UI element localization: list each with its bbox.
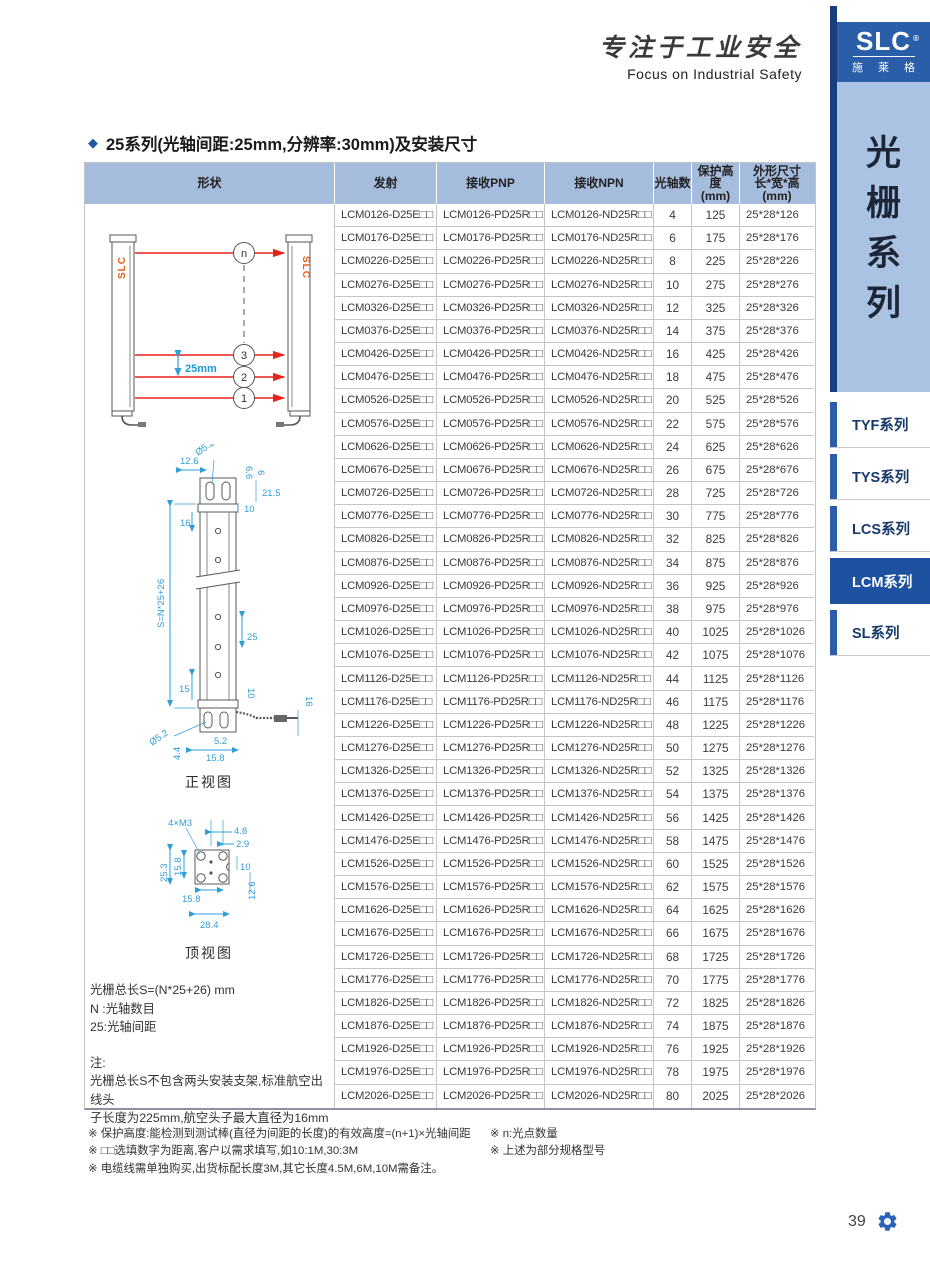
- table-row: LCM0376-D25E□□LCM0376-PD25R□□LCM0376-ND2…: [335, 320, 814, 343]
- cell-axes: 16: [654, 343, 692, 366]
- cell-pnp: LCM1126-PD25R□□: [437, 667, 545, 690]
- cell-axes: 26: [654, 459, 692, 482]
- cell-emitter: LCM2026-D25E□□: [335, 1085, 437, 1108]
- cell-pnp: LCM0326-PD25R□□: [437, 297, 545, 320]
- cell-dims: 25*28*1876: [740, 1015, 814, 1038]
- cell-height: 1425: [692, 806, 740, 829]
- cell-emitter: LCM0376-D25E□□: [335, 320, 437, 343]
- cell-height: 1775: [692, 969, 740, 992]
- cell-pnp: LCM1876-PD25R□□: [437, 1015, 545, 1038]
- cell-height: 625: [692, 436, 740, 459]
- cell-height: 825: [692, 528, 740, 551]
- column-header: 发射: [335, 163, 437, 204]
- cell-axes: 68: [654, 946, 692, 969]
- cell-pnp: LCM1776-PD25R□□: [437, 969, 545, 992]
- cell-axes: 18: [654, 366, 692, 389]
- cell-emitter: LCM0576-D25E□□: [335, 413, 437, 436]
- cell-emitter: LCM0626-D25E□□: [335, 436, 437, 459]
- sidebar-series-title: 光 栅 系 列: [837, 82, 930, 392]
- sidebar-tab-SL系列[interactable]: SL系列: [830, 610, 930, 656]
- cell-npn: LCM0376-ND25R□□: [545, 320, 654, 343]
- cell-height: 1725: [692, 946, 740, 969]
- cell-emitter: LCM0476-D25E□□: [335, 366, 437, 389]
- cell-axes: 54: [654, 783, 692, 806]
- dim-4-8: 4.8: [234, 826, 247, 837]
- cell-pnp: LCM1576-PD25R□□: [437, 876, 545, 899]
- cell-pnp: LCM0476-PD25R□□: [437, 366, 545, 389]
- cell-axes: 32: [654, 528, 692, 551]
- shape-notes: 光栅总长S=(N*25+26) mm N :光轴数目 25:光轴间距 注: 光栅…: [90, 981, 332, 1128]
- cell-dims: 25*28*1976: [740, 1061, 814, 1084]
- table-row: LCM0826-D25E□□LCM0826-PD25R□□LCM0826-ND2…: [335, 528, 814, 551]
- cell-dims: 25*28*1276: [740, 737, 814, 760]
- cell-npn: LCM2026-ND25R□□: [545, 1085, 654, 1108]
- cell-pnp: LCM0676-PD25R□□: [437, 459, 545, 482]
- dim-28-4: 28.4: [200, 920, 219, 931]
- cell-pnp: LCM1226-PD25R□□: [437, 714, 545, 737]
- registered-mark: ®: [913, 27, 920, 51]
- beam-label-3: 3: [241, 350, 247, 362]
- table-row: LCM2026-D25E□□LCM2026-PD25R□□LCM2026-ND2…: [335, 1085, 814, 1108]
- cell-height: 2025: [692, 1085, 740, 1108]
- table-row: LCM1126-D25E□□LCM1126-PD25R□□LCM1126-ND2…: [335, 667, 814, 690]
- cell-axes: 10: [654, 274, 692, 297]
- top-view-drawing: 4×M3 4.8 2.9 15.8 25.3 10 12.6 15.8 28.4: [140, 800, 340, 935]
- table-row: LCM1076-D25E□□LCM1076-PD25R□□LCM1076-ND2…: [335, 644, 814, 667]
- table-row: LCM1226-D25E□□LCM1226-PD25R□□LCM1226-ND2…: [335, 714, 814, 737]
- table-row: LCM1726-D25E□□LCM1726-PD25R□□LCM1726-ND2…: [335, 946, 814, 969]
- section-title: ◆ 25系列(光轴间距:25mm,分辨率:30mm)及安装尺寸: [88, 131, 477, 155]
- dim-total: S=N*25+26: [156, 579, 167, 628]
- cell-npn: LCM1176-ND25R□□: [545, 691, 654, 714]
- beam-diagram: SLC SLC n 3 2 1 25mm: [96, 222, 326, 434]
- table-row: LCM1526-D25E□□LCM1526-PD25R□□LCM1526-ND2…: [335, 853, 814, 876]
- cell-pnp: LCM0576-PD25R□□: [437, 413, 545, 436]
- dim-6: 6: [255, 470, 266, 475]
- cell-npn: LCM0826-ND25R□□: [545, 528, 654, 551]
- cell-npn: LCM1426-ND25R□□: [545, 806, 654, 829]
- cell-pnp: LCM1926-PD25R□□: [437, 1038, 545, 1061]
- cell-axes: 46: [654, 691, 692, 714]
- spec-table-body: LCM0126-D25E□□LCM0126-PD25R□□LCM0126-ND2…: [335, 204, 814, 1108]
- cell-axes: 34: [654, 552, 692, 575]
- page-footer: 39: [848, 1210, 899, 1233]
- cell-axes: 50: [654, 737, 692, 760]
- cell-emitter: LCM1576-D25E□□: [335, 876, 437, 899]
- cell-pnp: LCM0126-PD25R□□: [437, 204, 545, 227]
- cell-dims: 25*28*176: [740, 227, 814, 250]
- table-row: LCM1426-D25E□□LCM1426-PD25R□□LCM1426-ND2…: [335, 806, 814, 829]
- slc-logo: SLC® 施 莱 格: [837, 22, 930, 82]
- table-row: LCM1276-D25E□□LCM1276-PD25R□□LCM1276-ND2…: [335, 737, 814, 760]
- cell-emitter: LCM1126-D25E□□: [335, 667, 437, 690]
- tab-label: LCS系列: [837, 518, 910, 539]
- dim-5-2: 5.2: [214, 736, 227, 747]
- cell-pnp: LCM0926-PD25R□□: [437, 575, 545, 598]
- cell-emitter: LCM1776-D25E□□: [335, 969, 437, 992]
- cell-axes: 24: [654, 436, 692, 459]
- front-view-drawing: S=N*25+26 12.6 Ø5.2 6.6 6 21.5 10 16 25 …: [140, 444, 340, 764]
- cell-emitter: LCM0426-D25E□□: [335, 343, 437, 366]
- cell-npn: LCM0126-ND25R□□: [545, 204, 654, 227]
- table-row: LCM1376-D25E□□LCM1376-PD25R□□LCM1376-ND2…: [335, 783, 814, 806]
- cell-emitter: LCM1176-D25E□□: [335, 691, 437, 714]
- cell-pnp: LCM0276-PD25R□□: [437, 274, 545, 297]
- cell-height: 1675: [692, 922, 740, 945]
- cell-axes: 40: [654, 621, 692, 644]
- cell-height: 125: [692, 204, 740, 227]
- cell-pnp: LCM0376-PD25R□□: [437, 320, 545, 343]
- cell-emitter: LCM1526-D25E□□: [335, 853, 437, 876]
- cell-emitter: LCM0226-D25E□□: [335, 250, 437, 273]
- brand-area: 专注于工业安全 Focus on Industrial Safety: [502, 28, 802, 82]
- cell-pnp: LCM0776-PD25R□□: [437, 505, 545, 528]
- cell-height: 325: [692, 297, 740, 320]
- sidebar-tab-LCS系列[interactable]: LCS系列: [830, 506, 930, 552]
- cell-emitter: LCM1226-D25E□□: [335, 714, 437, 737]
- table-row: LCM1926-D25E□□LCM1926-PD25R□□LCM1926-ND2…: [335, 1038, 814, 1061]
- cell-dims: 25*28*676: [740, 459, 814, 482]
- dim-15-8: 15.8: [206, 753, 225, 764]
- cell-pnp: LCM0226-PD25R□□: [437, 250, 545, 273]
- cell-height: 575: [692, 413, 740, 436]
- page-number: 39: [848, 1213, 866, 1231]
- cell-pnp: LCM1976-PD25R□□: [437, 1061, 545, 1084]
- cell-axes: 66: [654, 922, 692, 945]
- tab-accent-bar: [830, 454, 837, 499]
- cell-emitter: LCM0976-D25E□□: [335, 598, 437, 621]
- table-row: LCM0976-D25E□□LCM0976-PD25R□□LCM0976-ND2…: [335, 598, 814, 621]
- table-row: LCM0726-D25E□□LCM0726-PD25R□□LCM0726-ND2…: [335, 482, 814, 505]
- n-definition: N :光轴数目: [90, 1000, 332, 1019]
- diamond-bullet-icon: ◆: [88, 135, 98, 151]
- cell-npn: LCM0676-ND25R□□: [545, 459, 654, 482]
- cell-height: 525: [692, 389, 740, 412]
- cell-npn: LCM0926-ND25R□□: [545, 575, 654, 598]
- catalog-page: 专注于工业安全 Focus on Industrial Safety SLC® …: [0, 0, 930, 1262]
- beam-label-2: 2: [241, 372, 247, 384]
- cell-dims: 25*28*426: [740, 343, 814, 366]
- tab-accent-bar: [830, 610, 837, 655]
- sidebar-accent-strip: [830, 6, 837, 392]
- table-row: LCM1976-D25E□□LCM1976-PD25R□□LCM1976-ND2…: [335, 1061, 814, 1084]
- tab-label: TYF系列: [837, 414, 908, 435]
- dim-6-6: 6.6: [243, 466, 254, 479]
- cell-emitter: LCM0926-D25E□□: [335, 575, 437, 598]
- cell-npn: LCM0226-ND25R□□: [545, 250, 654, 273]
- table-header: 形状发射接收PNP接收NPN光轴数保护高度 (mm)外形尺寸 长*宽*高 (mm…: [85, 163, 815, 204]
- cell-axes: 38: [654, 598, 692, 621]
- dim-25-3: 25.3: [159, 864, 170, 883]
- table-row: LCM1626-D25E□□LCM1626-PD25R□□LCM1626-ND2…: [335, 899, 814, 922]
- cell-height: 1575: [692, 876, 740, 899]
- table-row: LCM1676-D25E□□LCM1676-PD25R□□LCM1676-ND2…: [335, 922, 814, 945]
- footnotes-left: ※ 保护高度:能检测到测试棒(直径为间距的长度)的有效高度=(n+1)×光轴间距…: [88, 1126, 471, 1178]
- table-row: LCM0326-D25E□□LCM0326-PD25R□□LCM0326-ND2…: [335, 297, 814, 320]
- cell-emitter: LCM0676-D25E□□: [335, 459, 437, 482]
- cell-axes: 74: [654, 1015, 692, 1038]
- table-row: LCM0776-D25E□□LCM0776-PD25R□□LCM0776-ND2…: [335, 505, 814, 528]
- table-row: LCM0526-D25E□□LCM0526-PD25R□□LCM0526-ND2…: [335, 389, 814, 412]
- cell-height: 925: [692, 575, 740, 598]
- cell-axes: 6: [654, 227, 692, 250]
- gear-icon: [876, 1210, 899, 1233]
- cell-dims: 25*28*1476: [740, 830, 814, 853]
- cell-dims: 25*28*1376: [740, 783, 814, 806]
- cell-axes: 58: [654, 830, 692, 853]
- cell-dims: 25*28*276: [740, 274, 814, 297]
- cell-height: 1125: [692, 667, 740, 690]
- cell-npn: LCM1776-ND25R□□: [545, 969, 654, 992]
- right-bar-logo: SLC: [300, 256, 311, 279]
- cell-axes: 62: [654, 876, 692, 899]
- cell-npn: LCM1476-ND25R□□: [545, 830, 654, 853]
- cell-pnp: LCM1276-PD25R□□: [437, 737, 545, 760]
- top-view-caption: 顶视图: [84, 943, 334, 963]
- cell-dims: 25*28*576: [740, 413, 814, 436]
- cell-axes: 78: [654, 1061, 692, 1084]
- cell-npn: LCM1376-ND25R□□: [545, 783, 654, 806]
- right-bar-cap: [286, 235, 312, 242]
- dim-dia-bot: Ø5.2: [147, 728, 170, 749]
- cell-npn: LCM1626-ND25R□□: [545, 899, 654, 922]
- cell-axes: 76: [654, 1038, 692, 1061]
- beam-label-1: 1: [241, 393, 247, 405]
- cell-npn: LCM0726-ND25R□□: [545, 482, 654, 505]
- pitch-label: 25mm: [185, 363, 217, 375]
- cell-npn: LCM0626-ND25R□□: [545, 436, 654, 459]
- cell-npn: LCM0276-ND25R□□: [545, 274, 654, 297]
- cell-height: 1525: [692, 853, 740, 876]
- cell-dims: 25*28*526: [740, 389, 814, 412]
- cell-height: 1325: [692, 760, 740, 783]
- cell-dims: 25*28*226: [740, 250, 814, 273]
- cell-dims: 25*28*976: [740, 598, 814, 621]
- cell-height: 1175: [692, 691, 740, 714]
- cell-emitter: LCM1626-D25E□□: [335, 899, 437, 922]
- cell-npn: LCM1076-ND25R□□: [545, 644, 654, 667]
- cell-axes: 70: [654, 969, 692, 992]
- cell-dims: 25*28*726: [740, 482, 814, 505]
- section-title-text: 25系列(光轴间距:25mm,分辨率:30mm)及安装尺寸: [106, 131, 477, 155]
- cell-pnp: LCM1326-PD25R□□: [437, 760, 545, 783]
- series-char: 光: [866, 136, 901, 171]
- cell-npn: LCM1726-ND25R□□: [545, 946, 654, 969]
- cell-emitter: LCM1726-D25E□□: [335, 946, 437, 969]
- table-row: LCM0676-D25E□□LCM0676-PD25R□□LCM0676-ND2…: [335, 459, 814, 482]
- cell-npn: LCM1826-ND25R□□: [545, 992, 654, 1015]
- table-row: LCM0476-D25E□□LCM0476-PD25R□□LCM0476-ND2…: [335, 366, 814, 389]
- cell-pnp: LCM1426-PD25R□□: [437, 806, 545, 829]
- cell-axes: 72: [654, 992, 692, 1015]
- dim-16-top: 16: [180, 518, 191, 529]
- cell-dims: 25*28*1776: [740, 969, 814, 992]
- cell-axes: 8: [654, 250, 692, 273]
- sidebar-tab-TYS系列[interactable]: TYS系列: [830, 454, 930, 500]
- note-line-2: 子长度为225mm,航空头子最大直径为16mm: [90, 1109, 332, 1128]
- cell-emitter: LCM1476-D25E□□: [335, 830, 437, 853]
- column-header: 接收NPN: [545, 163, 654, 204]
- sidebar-tab-LCM系列[interactable]: LCM系列: [830, 558, 930, 604]
- table-row: LCM1476-D25E□□LCM1476-PD25R□□LCM1476-ND2…: [335, 830, 814, 853]
- cell-pnp: LCM0526-PD25R□□: [437, 389, 545, 412]
- table-row: LCM0876-D25E□□LCM0876-PD25R□□LCM0876-ND2…: [335, 552, 814, 575]
- cell-emitter: LCM0126-D25E□□: [335, 204, 437, 227]
- cell-dims: 25*28*1676: [740, 922, 814, 945]
- cell-axes: 48: [654, 714, 692, 737]
- tab-accent-bar: [830, 558, 837, 604]
- cell-pnp: LCM1726-PD25R□□: [437, 946, 545, 969]
- cell-pnp: LCM0626-PD25R□□: [437, 436, 545, 459]
- cell-emitter: LCM1376-D25E□□: [335, 783, 437, 806]
- cell-axes: 44: [654, 667, 692, 690]
- cell-axes: 64: [654, 899, 692, 922]
- cell-axes: 20: [654, 389, 692, 412]
- cell-height: 1875: [692, 1015, 740, 1038]
- table-row: LCM0626-D25E□□LCM0626-PD25R□□LCM0626-ND2…: [335, 436, 814, 459]
- cell-height: 725: [692, 482, 740, 505]
- tab-label: SL系列: [837, 622, 900, 643]
- dim-15-8-left: 15.8: [173, 858, 184, 877]
- cell-pnp: LCM2026-PD25R□□: [437, 1085, 545, 1108]
- cell-emitter: LCM0776-D25E□□: [335, 505, 437, 528]
- cell-pnp: LCM0826-PD25R□□: [437, 528, 545, 551]
- cell-emitter: LCM1276-D25E□□: [335, 737, 437, 760]
- series-char: 系: [866, 236, 901, 271]
- cell-emitter: LCM0876-D25E□□: [335, 552, 437, 575]
- table-row: LCM1176-D25E□□LCM1176-PD25R□□LCM1176-ND2…: [335, 691, 814, 714]
- column-header: 光轴数: [654, 163, 692, 204]
- cell-height: 1625: [692, 899, 740, 922]
- cell-height: 1975: [692, 1061, 740, 1084]
- cell-npn: LCM0176-ND25R□□: [545, 227, 654, 250]
- cell-height: 1475: [692, 830, 740, 853]
- cell-pnp: LCM1076-PD25R□□: [437, 644, 545, 667]
- cell-npn: LCM1326-ND25R□□: [545, 760, 654, 783]
- table-row: LCM0426-D25E□□LCM0426-PD25R□□LCM0426-ND2…: [335, 343, 814, 366]
- cell-dims: 25*28*876: [740, 552, 814, 575]
- left-bar-cap: [110, 235, 136, 242]
- cell-height: 1825: [692, 992, 740, 1015]
- tab-label: LCM系列: [837, 571, 912, 592]
- cell-emitter: LCM1326-D25E□□: [335, 760, 437, 783]
- cell-pnp: LCM0426-PD25R□□: [437, 343, 545, 366]
- cell-axes: 42: [654, 644, 692, 667]
- dim-10-top: 10: [244, 504, 255, 515]
- cell-dims: 25*28*1526: [740, 853, 814, 876]
- footnote-line: ※ n:光点数量: [490, 1126, 605, 1143]
- cell-dims: 25*28*1226: [740, 714, 814, 737]
- dim-12-6-right: 12.6: [247, 882, 258, 901]
- cell-npn: LCM0526-ND25R□□: [545, 389, 654, 412]
- cell-emitter: LCM1926-D25E□□: [335, 1038, 437, 1061]
- cell-dims: 25*28*1926: [740, 1038, 814, 1061]
- cell-height: 225: [692, 250, 740, 273]
- cell-pnp: LCM1376-PD25R□□: [437, 783, 545, 806]
- cell-npn: LCM1126-ND25R□□: [545, 667, 654, 690]
- cell-dims: 25*28*1026: [740, 621, 814, 644]
- cell-npn: LCM1676-ND25R□□: [545, 922, 654, 945]
- cell-axes: 52: [654, 760, 692, 783]
- dim-4xm3: 4×M3: [168, 818, 192, 829]
- cell-npn: LCM1226-ND25R□□: [545, 714, 654, 737]
- footnote-line: ※ 电缆线需单独购买,出货标配长度3M,其它长度4.5M,6M,10M需备注。: [88, 1161, 471, 1178]
- cell-npn: LCM0426-ND25R□□: [545, 343, 654, 366]
- tab-accent-bar: [830, 506, 837, 551]
- cell-axes: 4: [654, 204, 692, 227]
- cell-height: 775: [692, 505, 740, 528]
- cell-emitter: LCM0326-D25E□□: [335, 297, 437, 320]
- cell-height: 1375: [692, 783, 740, 806]
- column-header: 形状: [85, 163, 335, 204]
- cell-dims: 25*28*626: [740, 436, 814, 459]
- cell-pnp: LCM1626-PD25R□□: [437, 899, 545, 922]
- cell-dims: 25*28*1076: [740, 644, 814, 667]
- cell-axes: 36: [654, 575, 692, 598]
- cell-height: 975: [692, 598, 740, 621]
- cell-emitter: LCM1426-D25E□□: [335, 806, 437, 829]
- table-row: LCM0276-D25E□□LCM0276-PD25R□□LCM0276-ND2…: [335, 274, 814, 297]
- table-row: LCM1776-D25E□□LCM1776-PD25R□□LCM1776-ND2…: [335, 969, 814, 992]
- cell-axes: 14: [654, 320, 692, 343]
- dim-21-5: 21.5: [262, 488, 281, 499]
- cell-npn: LCM0576-ND25R□□: [545, 413, 654, 436]
- front-view-caption: 正视图: [84, 772, 334, 792]
- cell-height: 375: [692, 320, 740, 343]
- dim-4-4: 4.4: [172, 747, 183, 760]
- brand-slogan-cn: 专注于工业安全: [502, 28, 802, 64]
- cell-emitter: LCM0176-D25E□□: [335, 227, 437, 250]
- series-char: 列: [866, 286, 901, 321]
- table-row: LCM1576-D25E□□LCM1576-PD25R□□LCM1576-ND2…: [335, 876, 814, 899]
- cell-emitter: LCM1826-D25E□□: [335, 992, 437, 1015]
- footnote-line: ※ □□选填数字为距离,客户以需求填写,如10:1M,30:3M: [88, 1143, 471, 1160]
- cell-dims: 25*28*1176: [740, 691, 814, 714]
- cell-dims: 25*28*476: [740, 366, 814, 389]
- cell-dims: 25*28*776: [740, 505, 814, 528]
- cell-npn: LCM0776-ND25R□□: [545, 505, 654, 528]
- cell-pnp: LCM1526-PD25R□□: [437, 853, 545, 876]
- cell-pnp: LCM0876-PD25R□□: [437, 552, 545, 575]
- cell-dims: 25*28*376: [740, 320, 814, 343]
- tab-label: TYS系列: [837, 466, 909, 487]
- logo-divider: [853, 56, 915, 57]
- cell-height: 1075: [692, 644, 740, 667]
- cell-height: 1225: [692, 714, 740, 737]
- dim-12-6: 12.6: [180, 456, 199, 467]
- cell-axes: 80: [654, 1085, 692, 1108]
- cell-height: 175: [692, 227, 740, 250]
- sidebar-tab-TYF系列[interactable]: TYF系列: [830, 402, 930, 448]
- cell-emitter: LCM1676-D25E□□: [335, 922, 437, 945]
- cell-axes: 28: [654, 482, 692, 505]
- table-row: LCM0926-D25E□□LCM0926-PD25R□□LCM0926-ND2…: [335, 575, 814, 598]
- logo-text: SLC®: [856, 29, 911, 53]
- logo-subtitle: 施 莱 格: [852, 59, 921, 75]
- cell-pnp: LCM0726-PD25R□□: [437, 482, 545, 505]
- table-row: LCM1876-D25E□□LCM1876-PD25R□□LCM1876-ND2…: [335, 1015, 814, 1038]
- table-row: LCM1826-D25E□□LCM1826-PD25R□□LCM1826-ND2…: [335, 992, 814, 1015]
- cell-height: 425: [692, 343, 740, 366]
- cell-dims: 25*28*1576: [740, 876, 814, 899]
- footnotes-right: ※ n:光点数量※ 上述为部分规格型号: [490, 1126, 605, 1161]
- table-row: LCM0126-D25E□□LCM0126-PD25R□□LCM0126-ND2…: [335, 204, 814, 227]
- cell-npn: LCM1276-ND25R□□: [545, 737, 654, 760]
- cell-axes: 22: [654, 413, 692, 436]
- cell-dims: 25*28*126: [740, 204, 814, 227]
- cell-npn: LCM0876-ND25R□□: [545, 552, 654, 575]
- cell-dims: 25*28*2026: [740, 1085, 814, 1108]
